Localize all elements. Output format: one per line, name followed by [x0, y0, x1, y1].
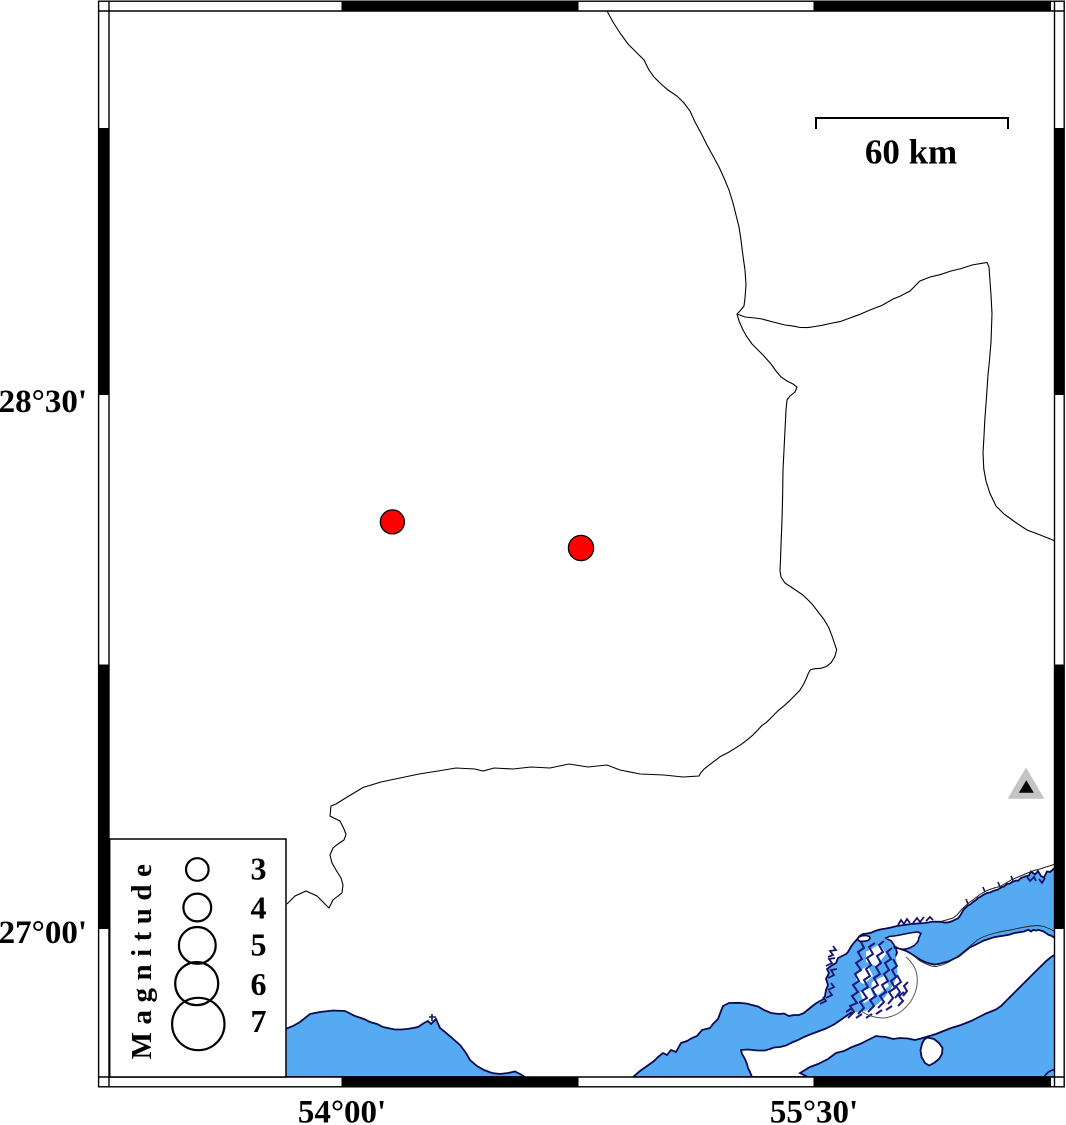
svg-text:55°30': 55°30' — [770, 1095, 858, 1125]
svg-text:4: 4 — [251, 890, 267, 926]
svg-text:27°00': 27°00' — [0, 915, 87, 951]
svg-text:54°00': 54°00' — [298, 1095, 386, 1125]
svg-text:Magnitude: Magnitude — [126, 857, 158, 1060]
svg-text:6: 6 — [251, 966, 267, 1002]
svg-text:5: 5 — [251, 927, 267, 963]
svg-text:7: 7 — [251, 1003, 267, 1039]
svg-text:28°30': 28°30' — [0, 384, 87, 420]
svg-text:3: 3 — [251, 851, 267, 887]
svg-text:60 km: 60 km — [865, 133, 957, 172]
